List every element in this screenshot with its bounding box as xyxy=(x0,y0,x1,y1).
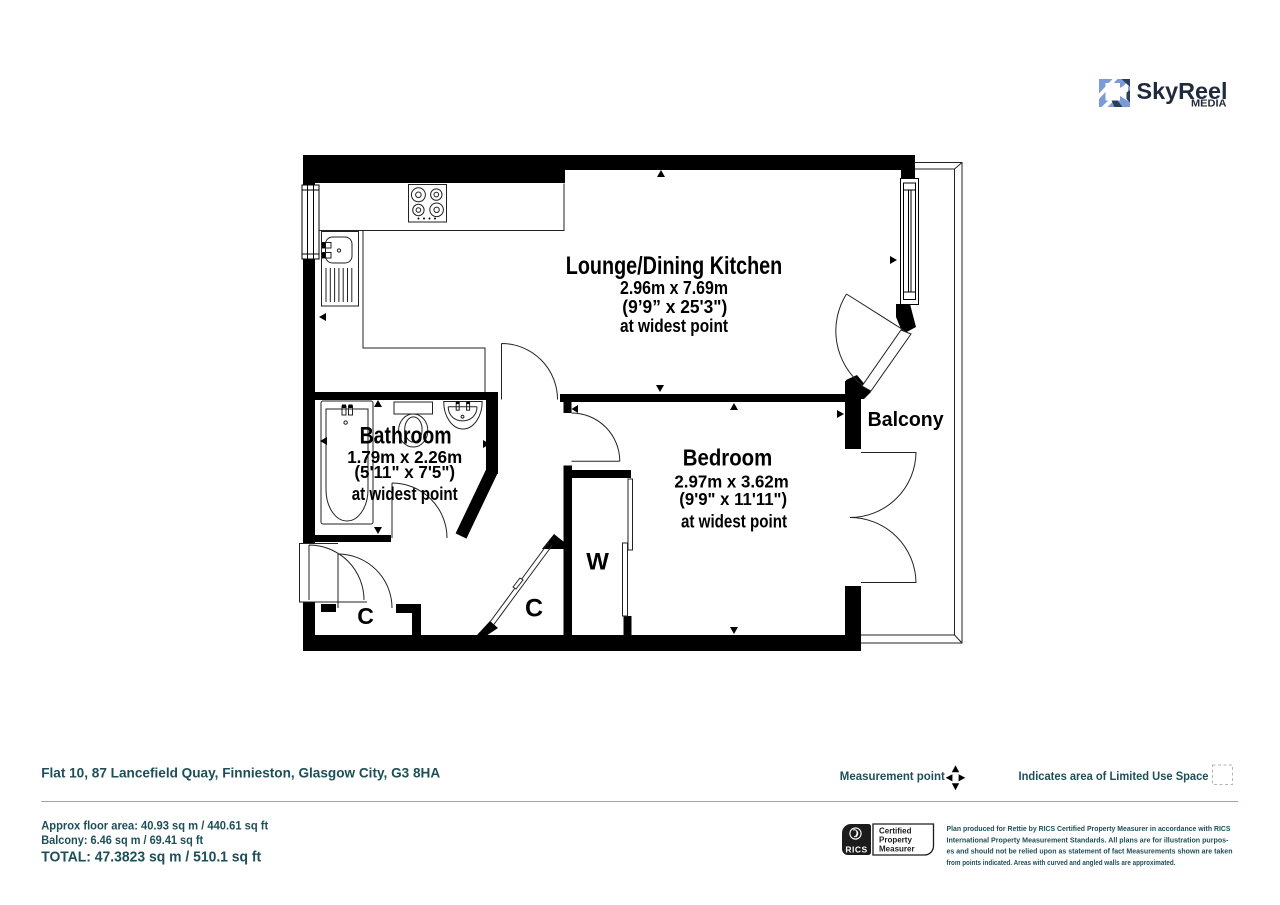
svg-text:Measurement point: Measurement point xyxy=(840,769,945,783)
svg-text:at widest point: at widest point xyxy=(681,512,787,532)
svg-text:Lounge/Dining Kitchen: Lounge/Dining Kitchen xyxy=(566,252,783,280)
svg-text:Indicates area of Limited Use: Indicates area of Limited Use Space xyxy=(1019,769,1209,783)
svg-text:Flat 10, 87 Lancefield Quay, F: Flat 10, 87 Lancefield Quay, Finnieston,… xyxy=(41,765,440,781)
svg-text:RICS: RICS xyxy=(845,845,867,855)
svg-text:at widest point: at widest point xyxy=(352,484,458,504)
svg-text:Bedroom: Bedroom xyxy=(683,445,773,471)
svg-text:C: C xyxy=(357,603,374,629)
svg-text:Approx floor area: 40.93 sq m: Approx floor area: 40.93 sq m / 440.61 s… xyxy=(41,819,268,833)
svg-text:(9'9" x 11'11"): (9'9" x 11'11") xyxy=(679,489,787,509)
svg-text:TOTAL: 47.3823 sq m / 510.1 sq: TOTAL: 47.3823 sq m / 510.1 sq ft xyxy=(41,848,261,865)
svg-text:Property: Property xyxy=(879,836,912,845)
svg-text:(9’9” x 25'3"): (9’9” x 25'3") xyxy=(622,297,727,317)
svg-text:W: W xyxy=(586,549,609,576)
svg-text:C: C xyxy=(525,594,543,622)
svg-text:from points indicated. Areas w: from points indicated. Areas with curved… xyxy=(947,858,1176,867)
svg-text:Bathroom: Bathroom xyxy=(360,422,452,449)
svg-text:2.96m x 7.69m: 2.96m x 7.69m xyxy=(620,278,728,298)
svg-text:es and should not be relied up: es and should not be relied upon as stat… xyxy=(947,847,1233,856)
svg-text:Balcony: Balcony xyxy=(868,409,945,431)
svg-text:International Property Measur: International Property Measurement Stand… xyxy=(947,835,1229,844)
svg-text:MEDIA: MEDIA xyxy=(1191,99,1227,110)
svg-text:Measurer: Measurer xyxy=(879,845,915,854)
svg-text:at widest point: at widest point xyxy=(620,316,728,336)
svg-text:(5'11" x 7'5"): (5'11" x 7'5") xyxy=(354,462,455,482)
svg-text:Certified: Certified xyxy=(879,827,912,836)
svg-text:Plan produced for Rettie by RI: Plan produced for Rettie by RICS Certifi… xyxy=(947,824,1231,833)
svg-text:Balcony: 6.46 sq m / 69.41 sq: Balcony: 6.46 sq m / 69.41 sq ft xyxy=(41,833,203,847)
